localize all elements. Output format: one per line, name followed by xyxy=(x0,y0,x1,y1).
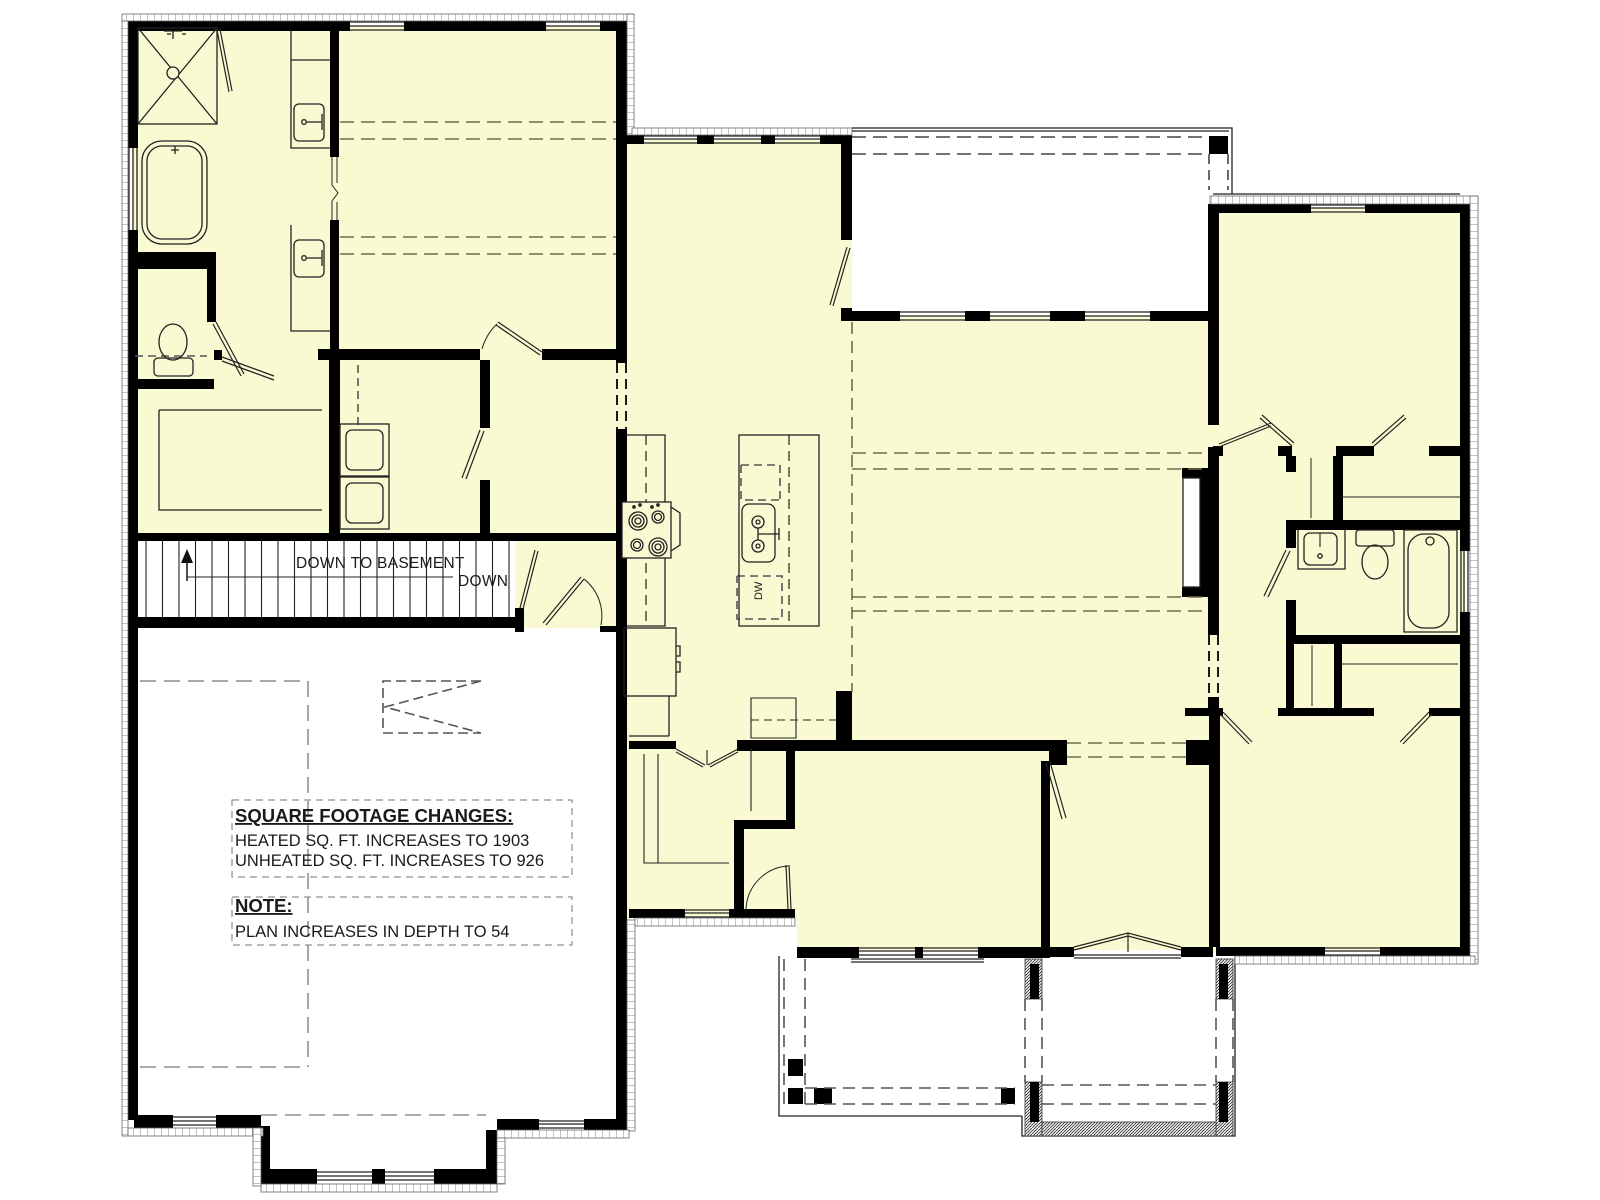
svg-text:DW: DW xyxy=(753,581,765,600)
svg-text:DOWN: DOWN xyxy=(458,573,508,590)
svg-text:PLAN INCREASES IN DEPTH TO 54: PLAN INCREASES IN DEPTH TO 54 xyxy=(235,923,509,941)
svg-text:DOWN TO BASEMENT: DOWN TO BASEMENT xyxy=(296,555,465,572)
svg-text:NOTE:: NOTE: xyxy=(235,895,293,916)
svg-text:UNHEATED SQ. FT. INCREASES TO: UNHEATED SQ. FT. INCREASES TO 926 xyxy=(235,852,544,870)
svg-text:SQUARE FOOTAGE CHANGES:: SQUARE FOOTAGE CHANGES: xyxy=(235,805,513,826)
svg-text:HEATED SQ. FT. INCREASES TO 19: HEATED SQ. FT. INCREASES TO 1903 xyxy=(235,832,529,850)
